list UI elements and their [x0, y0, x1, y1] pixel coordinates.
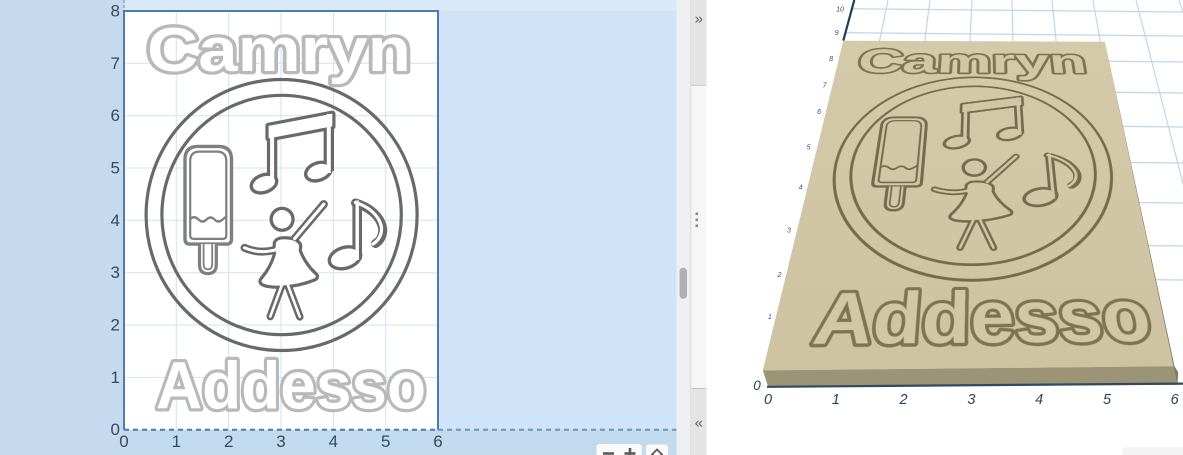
svg-text:10: 10: [836, 6, 844, 13]
svg-text:4: 4: [799, 184, 803, 191]
svg-text:6: 6: [817, 109, 821, 116]
svg-text:1: 1: [768, 314, 772, 321]
svg-text:4: 4: [1035, 392, 1043, 408]
svg-text:7: 7: [111, 54, 120, 73]
svg-text:1: 1: [111, 368, 120, 387]
svg-text:6: 6: [111, 106, 120, 125]
svg-text:»: »: [695, 11, 703, 28]
svg-text:8: 8: [111, 2, 120, 21]
svg-text:4: 4: [111, 211, 120, 230]
svg-text:2: 2: [111, 316, 120, 335]
svg-text:1: 1: [832, 392, 840, 408]
svg-text:«: «: [695, 415, 703, 432]
svg-text:2: 2: [899, 392, 908, 408]
svg-text:Addesso: Addesso: [807, 278, 1158, 362]
svg-text:5: 5: [807, 144, 811, 151]
svg-text:6: 6: [433, 432, 442, 451]
svg-text:3: 3: [276, 432, 285, 451]
svg-text:5: 5: [111, 159, 120, 178]
svg-text:Camryn: Camryn: [147, 16, 411, 85]
svg-text:8: 8: [829, 56, 833, 63]
svg-text:Camryn: Camryn: [854, 43, 1089, 80]
svg-text:6: 6: [1171, 392, 1180, 408]
svg-text:0: 0: [119, 432, 128, 451]
svg-text:5: 5: [1103, 392, 1112, 408]
svg-text:3: 3: [787, 228, 791, 235]
svg-text:2: 2: [777, 272, 782, 279]
svg-text:4: 4: [329, 432, 338, 451]
svg-text:Addesso: Addesso: [156, 349, 426, 424]
svg-text:0: 0: [753, 378, 761, 393]
svg-text:3: 3: [111, 263, 120, 282]
svg-text:9: 9: [835, 30, 839, 37]
svg-text:0: 0: [764, 392, 772, 408]
svg-text:2: 2: [224, 432, 233, 451]
svg-text:1: 1: [172, 432, 181, 451]
svg-text:5: 5: [381, 432, 390, 451]
svg-text:3: 3: [967, 392, 975, 408]
